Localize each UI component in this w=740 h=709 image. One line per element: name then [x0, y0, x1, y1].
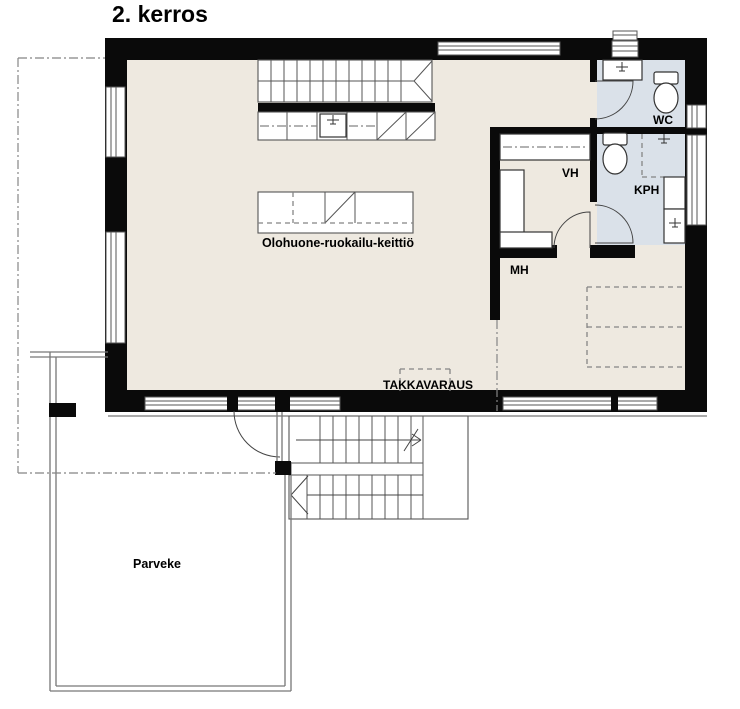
floor-plan-drawing: 2. kerros Olohuone-ruokailu-keittiö WC V…	[0, 0, 740, 709]
kph-unit-1	[664, 177, 685, 209]
living-room-label: Olohuone-ruokailu-keittiö	[262, 236, 414, 250]
right-window-kph	[687, 135, 706, 225]
balcony-post-right	[275, 461, 291, 475]
left-window-2	[106, 232, 125, 343]
kitchen-wall-cabinets	[258, 60, 432, 102]
right-window-wc	[687, 105, 706, 128]
floor-plan-page: 2. kerros Olohuone-ruokailu-keittiö WC V…	[0, 0, 740, 709]
mh-closet-tall	[500, 170, 524, 233]
kitchen-counter-back	[258, 103, 435, 112]
kph-toilet	[603, 133, 627, 174]
left-window-1	[106, 87, 125, 157]
page-title: 2. kerros	[112, 1, 208, 27]
fireplace-label: TAKKAVARAUS	[383, 378, 473, 392]
balcony-post-left	[49, 403, 76, 417]
kph-label: KPH	[634, 183, 659, 197]
south-window-band-living	[145, 394, 340, 412]
balcony-label: Parveke	[133, 557, 181, 571]
vh-room	[500, 134, 590, 160]
top-window-band	[438, 42, 560, 55]
kitchen-base-cabinets	[258, 112, 435, 140]
wc-toilet	[654, 72, 678, 113]
staircase	[289, 416, 468, 519]
wc-label: WC	[653, 113, 673, 127]
vh-label: VH	[562, 166, 579, 180]
mh-label: MH	[510, 263, 529, 277]
mh-closet-low	[500, 232, 552, 248]
kitchen-island	[258, 192, 413, 233]
wc-vent-window	[612, 31, 638, 57]
south-window-band-mh	[503, 396, 657, 411]
